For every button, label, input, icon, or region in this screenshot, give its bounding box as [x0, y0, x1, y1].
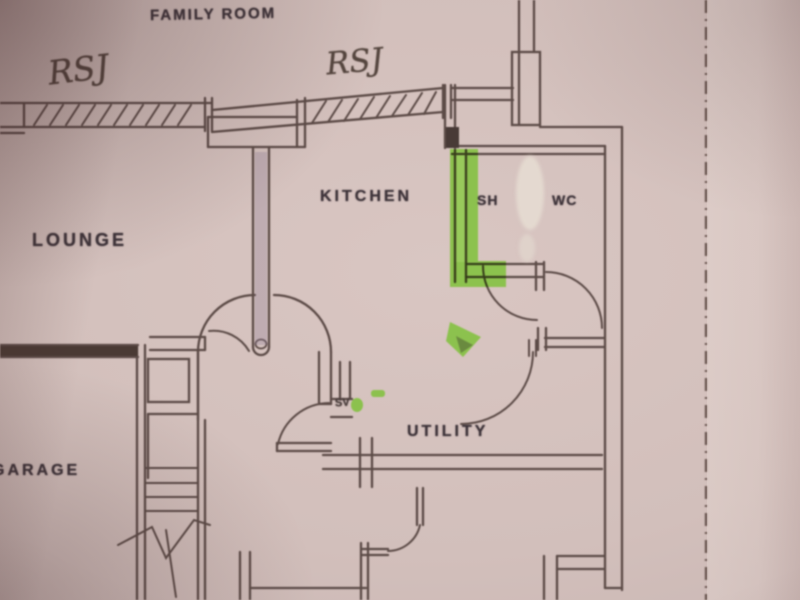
- room-label-lounge: LOUNGE: [32, 230, 127, 251]
- rsj-beam-left: [0, 98, 212, 133]
- room-label-family-room: FAMILY ROOM: [150, 5, 276, 24]
- top-right-walls: [445, 85, 622, 154]
- bottom-walls: [240, 552, 604, 600]
- plan-drawing-layer: FAMILY ROOM RSJ RSJ LOUNGE KITCHEN SH WC…: [0, 0, 800, 600]
- right-external-wall: [605, 127, 622, 590]
- annotation-sv: SV: [335, 397, 350, 410]
- room-label-garage: GARAGE: [0, 462, 80, 480]
- annotation-rsj-left: RSJ: [46, 46, 111, 92]
- purple-highlight-pier: [255, 152, 267, 345]
- annotation-rsj-right: RSJ: [325, 42, 385, 83]
- rsj-beam-right: [212, 85, 513, 132]
- green-dot-mark: [351, 398, 363, 412]
- utility-walls: [323, 438, 602, 600]
- green-dash-mark: [371, 390, 385, 397]
- room-label-wc: WC: [552, 192, 577, 208]
- garage-wall-fill: [0, 346, 138, 356]
- staircase: [118, 468, 210, 597]
- correction-fluid-mark: [516, 156, 544, 262]
- floor-plan-linework: [0, 0, 800, 600]
- chimney-wall: [512, 0, 540, 125]
- room-label-utility: UTILITY: [407, 423, 488, 441]
- room-label-kitchen: KITCHEN: [320, 188, 412, 206]
- room-label-shower: SH: [477, 192, 498, 208]
- hall-door-arcs: [461, 266, 602, 424]
- door-jamb-block: [446, 127, 459, 148]
- floor-plan-photo: FAMILY ROOM RSJ RSJ LOUNGE KITCHEN SH WC…: [0, 0, 800, 600]
- green-highlight-arrow: [446, 322, 481, 357]
